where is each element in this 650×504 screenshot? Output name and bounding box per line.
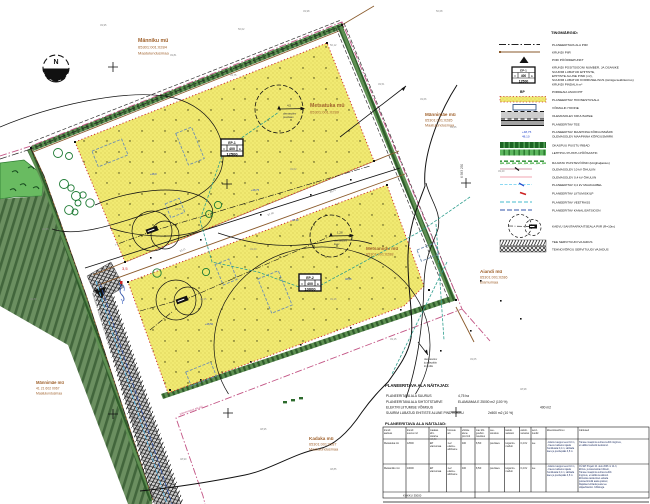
svg-text:10000: 10000 <box>407 467 414 470</box>
svg-text:48,95: 48,95 <box>260 427 267 431</box>
svg-text:48,85: 48,85 <box>330 467 337 471</box>
svg-text:krundi: krundi <box>407 429 414 432</box>
svg-text:Kadaka mü: Kadaka mü <box>309 436 334 441</box>
svg-text:KOKKU 35000: KOKKU 35000 <box>403 494 422 498</box>
svg-text:kitsendused/muu: kitsendused/muu <box>547 429 565 432</box>
svg-text:400: 400 <box>521 74 527 78</box>
svg-text:Metsatuka mü: Metsatuka mü <box>384 442 400 445</box>
svg-text:OLEMASOLEV 10 kV ÕHULIIN: OLEMASOLEV 10 kV ÕHULIIN <box>552 167 595 172</box>
svg-text:maakas.: maakas. <box>430 430 439 432</box>
svg-text:Männiku mü: Männiku mü <box>138 38 168 44</box>
svg-text:kaev: kaev <box>334 242 340 246</box>
svg-text:VÕIMALIK HOONE: VÕIMALIK HOONE <box>552 105 579 110</box>
svg-text:PLANEERITAV MAAPINNA KÕRGUSMÄR: PLANEERITAV MAAPINNA KÕRGUSMÄRK <box>552 129 614 134</box>
svg-text:12500: 12500 <box>519 79 529 83</box>
svg-text:aadress: aadress <box>384 432 393 435</box>
svg-text:krundi: krundi <box>384 429 391 432</box>
svg-text:E: E <box>239 147 241 151</box>
svg-text:0,4 kV: 0,4 kV <box>521 442 528 445</box>
svg-text:E: E <box>531 74 533 78</box>
svg-text:49,20: 49,20 <box>498 169 505 173</box>
svg-text:ruselisus: ruselisus <box>476 435 486 438</box>
svg-text:Ehitusloa taotlemisel esitada: Ehitusloa taotlemisel esitada <box>579 477 609 480</box>
svg-text:49,98: 49,98 <box>303 9 310 13</box>
svg-text:EP-1: EP-1 <box>228 141 236 145</box>
svg-text:EP-1: EP-1 <box>520 68 527 72</box>
svg-text:ELEKTRI LIITUMISE VÕIMSUS: ELEKTRI LIITUMISE VÕIMSUS <box>386 405 434 410</box>
svg-text:48,98: 48,98 <box>520 387 527 391</box>
svg-text:49,40: 49,40 <box>250 247 257 251</box>
svg-text:49,05: 49,05 <box>470 357 477 361</box>
svg-text:48,10: 48,10 <box>292 218 299 222</box>
svg-text:49,66: 49,66 <box>420 97 427 101</box>
svg-text:+48,9: +48,9 <box>150 172 157 176</box>
svg-text:1,28: 1,28 <box>337 231 343 235</box>
svg-text:vee-: vee- <box>490 430 495 432</box>
svg-text:ELAMUMAA E 25000 m2 (100 %): ELAMUMAA E 25000 m2 (100 %) <box>458 400 507 404</box>
svg-text:abihoone: abihoone <box>448 448 459 451</box>
svg-text:hooldusala 0,2 m, säilitada: hooldusala 0,2 m, säilitada <box>547 471 575 474</box>
svg-text:Männimäe mü: Männimäe mü <box>425 112 456 117</box>
svg-text:Männimäe mü: Männimäe mü <box>36 380 64 385</box>
svg-text:PLANEERITAVA ALA PIIR: PLANEERITAVA ALA PIIR <box>552 43 589 47</box>
svg-text:KAEVU SANITAARKAITSEALA PIIR (: KAEVU SANITAARKAITSEALA PIIR (R=10m) <box>552 225 615 229</box>
svg-text:juurdepääs: juurdepääs <box>423 360 438 364</box>
svg-text:ehitiste: ehitiste <box>462 429 470 432</box>
svg-text:elamumaa: elamumaa <box>430 445 442 448</box>
svg-text:II: II <box>223 147 225 151</box>
svg-text:krundile: krundile <box>424 364 434 368</box>
svg-text:märkused: märkused <box>579 429 590 432</box>
svg-text:49,35: 49,35 <box>200 297 207 301</box>
svg-text:Metsaniidu mü: Metsaniidu mü <box>366 246 398 251</box>
svg-text:varustus: varustus <box>490 432 500 435</box>
svg-text:TEHNOVÕRGU SERVITUUDI VAJADUS: TEHNOVÕRGU SERVITUUDI VAJADUS <box>552 247 609 252</box>
svg-text:PLANEERITAVA ALA NÄITAJAD:: PLANEERITAVA ALA NÄITAJAD: <box>385 421 446 426</box>
svg-text:50,08: 50,08 <box>436 9 443 13</box>
svg-text:Metsatuka mü: Metsatuka mü <box>310 103 345 109</box>
svg-text:OLEMASOLEV MAAPINNA KÕRGUSMÄRK: OLEMASOLEV MAAPINNA KÕRGUSMÄRK <box>552 134 614 139</box>
svg-text:12500: 12500 <box>226 152 238 157</box>
svg-text:TEE SERVITUUDI VAJADUS: TEE SERVITUUDI VAJADUS <box>552 240 592 244</box>
svg-text:10000: 10000 <box>304 287 316 292</box>
svg-text:TINGMÄRGID:: TINGMÄRGID: <box>551 30 578 35</box>
svg-text:PLANEERITAV HOONESTUSALA: PLANEERITAV HOONESTUSALA <box>552 98 600 102</box>
svg-text:N: N <box>53 59 58 66</box>
svg-text:mahuti: mahuti <box>506 445 514 448</box>
svg-text:48,05: 48,05 <box>345 277 352 281</box>
svg-text:400: 400 <box>462 442 467 445</box>
svg-text:tingimus, et säiliks keskkond.: tingimus, et säiliks keskkond. <box>579 474 609 477</box>
svg-text:Elamumaa: Elamumaa <box>480 281 499 285</box>
svg-text:OKASPUU PUISTU RIBAD: OKASPUU PUISTU RIBAD <box>552 144 590 148</box>
svg-text:48,10: 48,10 <box>522 135 530 139</box>
svg-text:49,81: 49,81 <box>170 53 177 57</box>
svg-text:Tänase maapinna suhtes kehtib: Tänase maapinna suhtes kehtib <box>579 471 612 474</box>
svg-text:65301:001:0286: 65301:001:0286 <box>480 276 507 280</box>
svg-text:Rajatised ehitada peale tee: Rajatised ehitada peale tee <box>579 483 608 486</box>
svg-text:49,80: 49,80 <box>30 297 37 301</box>
svg-text:RAJATAV PUISTEVÖÖND (kõrghalja: RAJATAV PUISTEVÖÖND (kõrghaljastus) <box>552 161 610 165</box>
svg-text:servi-: servi- <box>532 429 538 432</box>
svg-text:kaev ja juurdepääs 3,5 m.: kaev ja juurdepääs 3,5 m. <box>547 474 574 477</box>
svg-text:KRUNDI PINDALA m²: KRUNDI PINDALA m² <box>552 83 582 87</box>
svg-text:49,45: 49,45 <box>450 125 457 129</box>
svg-text:SUURIM LUBATUD KORRUSELISUS (t: SUURIM LUBATUD KORRUSELISUS (tärniga kel… <box>552 78 634 82</box>
svg-text:OLEMASOLEV 0,4 kV ÕHULIIN: OLEMASOLEV 0,4 kV ÕHULIIN <box>552 175 596 180</box>
svg-text:2x500 m2 (10 %): 2x500 m2 (10 %) <box>488 411 513 415</box>
svg-text:elektri-: elektri- <box>521 429 528 432</box>
svg-text:otstarve: otstarve <box>430 435 439 438</box>
svg-text:3,5: 3,5 <box>122 266 128 271</box>
svg-text:gus/kor-: gus/kor- <box>476 432 485 435</box>
svg-text:4,5: 4,5 <box>287 104 291 108</box>
svg-text:puurkaev: puurkaev <box>283 115 294 119</box>
svg-text:KRUNDI POSITSIOONI NUMBER, JA: KRUNDI POSITSIOONI NUMBER, JA OSANIKE <box>552 66 619 70</box>
svg-text:49,88: 49,88 <box>42 227 49 231</box>
svg-text:tuudid: tuudid <box>532 432 539 435</box>
svg-text:65301:001:0288: 65301:001:0288 <box>366 253 393 257</box>
svg-text:kaev ja juurdepääs 3,5 m.: kaev ja juurdepääs 3,5 m. <box>547 450 574 453</box>
svg-text:max kõr-: max kõr- <box>476 429 485 432</box>
svg-text:400: 400 <box>229 147 235 151</box>
svg-text:49,62: 49,62 <box>290 167 297 171</box>
svg-text:0,4 kV: 0,4 kV <box>521 467 528 470</box>
svg-text:PLANEERITAV KANALISATSIOON: PLANEERITAV KANALISATSIOON <box>552 209 600 213</box>
svg-text:EP-2: EP-2 <box>306 276 314 280</box>
svg-text:48,90: 48,90 <box>180 457 187 461</box>
svg-text:Maatulundusmaa: Maatulundusmaa <box>138 51 169 56</box>
svg-text:PLANEERITAV TEE: PLANEERITAV TEE <box>552 123 580 127</box>
svg-text:BP: BP <box>520 90 525 94</box>
svg-text:- Kaevu kaitseks rajada: - Kaevu kaitseks rajada <box>547 444 572 447</box>
svg-text:OÜ EP Projekt 10. dets 2006 nr: OÜ EP Projekt 10. dets 2006 nr 14-3, <box>579 465 617 468</box>
svg-text:II: II <box>301 282 303 286</box>
svg-text:PIIRDEAIA ASUKOHT: PIIRDEAIA ASUKOHT <box>552 90 583 94</box>
svg-text:Maatulundusmaa: Maatulundusmaa <box>36 392 62 396</box>
svg-text:puurkaev: puurkaev <box>490 442 501 445</box>
svg-text:PLANEERITAV 0,4 kV MAAKAABEL: PLANEERITAV 0,4 kV MAAKAABEL <box>552 183 602 187</box>
svg-text:hoonete: hoonete <box>448 429 457 432</box>
svg-text:siht-: siht- <box>430 432 435 435</box>
svg-text:PLANEERITAV LIITUMISKILP: PLANEERITAV LIITUMISKILP <box>552 192 594 196</box>
svg-text:PLANEERITAVA ALA SUURUS: PLANEERITAVA ALA SUURUS <box>386 394 432 398</box>
svg-text:PLANEERITAV VEETRASS: PLANEERITAV VEETRASS <box>552 201 590 205</box>
svg-text:olemasolev: olemasolev <box>424 357 438 361</box>
svg-text:49,51: 49,51 <box>378 82 385 86</box>
svg-text:PIIRI PÖÖRDEPUNKT: PIIRI PÖÖRDEPUNKT <box>552 58 584 62</box>
svg-text:+48,75: +48,75 <box>251 188 260 192</box>
svg-text:65301:001:0289: 65301:001:0289 <box>310 110 340 115</box>
svg-text:65301:001:0284: 65301:001:0284 <box>138 45 168 50</box>
svg-text:4,75 ha: 4,75 ha <box>458 394 469 398</box>
svg-text:E: E <box>317 282 319 286</box>
svg-text:50,12: 50,12 <box>330 43 337 47</box>
svg-text:PLANEERITAVA ALA SIHTOTSTARVE: PLANEERITAVA ALA SIHTOTSTARVE <box>386 400 443 404</box>
svg-text:Aiandi mü: Aiandi mü <box>480 269 502 274</box>
svg-text:mahuti: mahuti <box>506 470 514 473</box>
svg-text:8,5/II: 8,5/II <box>476 467 482 470</box>
svg-text:Metsaniidu mü: Metsaniidu mü <box>384 467 400 470</box>
svg-text:Maatulundusmaa: Maatulundusmaa <box>309 448 339 452</box>
svg-text:49,95: 49,95 <box>100 23 107 27</box>
svg-text:puistevööndid aasta jooksul,: puistevööndid aasta jooksul, <box>579 480 608 483</box>
svg-text:kanali-: kanali- <box>506 430 513 432</box>
svg-text:abihoone: abihoone <box>448 473 459 476</box>
svg-text:+48,75: +48,75 <box>522 130 532 134</box>
svg-text:65301:001:0285: 65301:001:0285 <box>425 119 452 123</box>
svg-text:Ehitus- ja kasutusload ühiselt: Ehitus- ja kasutusload ühiselt, <box>579 468 610 471</box>
svg-text:50,02: 50,02 <box>238 27 245 31</box>
svg-text:400: 400 <box>462 467 467 470</box>
svg-text:pind m2: pind m2 <box>462 436 471 438</box>
svg-text:6 583 250: 6 583 250 <box>460 164 464 178</box>
svg-text:LEHTPUU PUISTU-PÕÕSASTIK: LEHTPUU PUISTU-PÕÕSASTIK <box>552 150 598 155</box>
svg-text:väljaehitamist. Kõlvikuga.: väljaehitamist. Kõlvikuga. <box>579 486 605 489</box>
svg-text:et säiliks looduslik keskkond.: et säiliks looduslik keskkond. <box>579 444 609 447</box>
svg-text:49,55: 49,55 <box>175 207 182 211</box>
svg-text:Tänase maapinna suhtes kehtib: Tänase maapinna suhtes kehtib tingimus, <box>579 441 622 444</box>
svg-text:- Kaevu kaitseks rajada: - Kaevu kaitseks rajada <box>547 468 572 471</box>
svg-text:65301:001:0287: 65301:001:0287 <box>309 443 336 447</box>
svg-text:400: 400 <box>307 282 313 286</box>
svg-text:hooldusala 0,2 m, säilitada: hooldusala 0,2 m, säilitada <box>547 447 575 450</box>
svg-text:SUURIM LUBATUD EHITISTE ALUNE: SUURIM LUBATUD EHITISTE ALUNE PIND KOKKU <box>386 411 464 415</box>
svg-text:49,75: 49,75 <box>230 73 237 77</box>
svg-text:alune: alune <box>462 433 468 435</box>
svg-text:suurus m2: suurus m2 <box>407 432 418 435</box>
svg-text:41 21 602 0067: 41 21 602 0067 <box>36 387 60 391</box>
svg-text:elamumaa: elamumaa <box>430 470 442 473</box>
svg-text:puurkaev: puurkaev <box>490 467 501 470</box>
svg-text:satsioon: satsioon <box>506 432 515 435</box>
svg-text:OLEMASOLEV KRUUSATEE: OLEMASOLEV KRUUSATEE <box>552 114 593 118</box>
svg-text:KRUNDI PIIR: KRUNDI PIIR <box>552 51 572 55</box>
svg-text:+48,50: +48,50 <box>205 322 214 326</box>
svg-text:- Elamu kaugus teest 10 m,: - Elamu kaugus teest 10 m, <box>547 441 575 444</box>
svg-text:12500: 12500 <box>407 442 414 445</box>
svg-text:- Elamu kaugus teest 10 m,: - Elamu kaugus teest 10 m, <box>547 465 575 468</box>
svg-text:8,5/II: 8,5/II <box>476 442 482 445</box>
svg-text:49,28: 49,28 <box>330 297 337 301</box>
svg-text:varustus: varustus <box>521 432 531 435</box>
svg-text:49,15: 49,15 <box>390 337 397 341</box>
svg-text:400 m2: 400 m2 <box>540 406 551 410</box>
svg-text:PLANEERITAVA ALA NÄITAJAD:: PLANEERITAVA ALA NÄITAJAD: <box>385 383 449 388</box>
